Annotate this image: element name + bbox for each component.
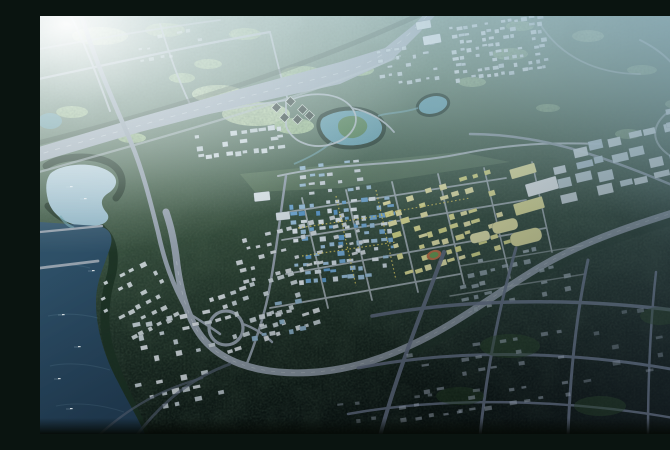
sun-glare xyxy=(40,16,670,434)
bottom-treeline xyxy=(40,418,670,434)
masterplan-svg: Aerial bird's-eye 3D rendering of an urb… xyxy=(40,16,670,434)
atmosphere xyxy=(40,16,670,434)
aerial-render: Aerial bird's-eye 3D rendering of an urb… xyxy=(40,16,670,434)
